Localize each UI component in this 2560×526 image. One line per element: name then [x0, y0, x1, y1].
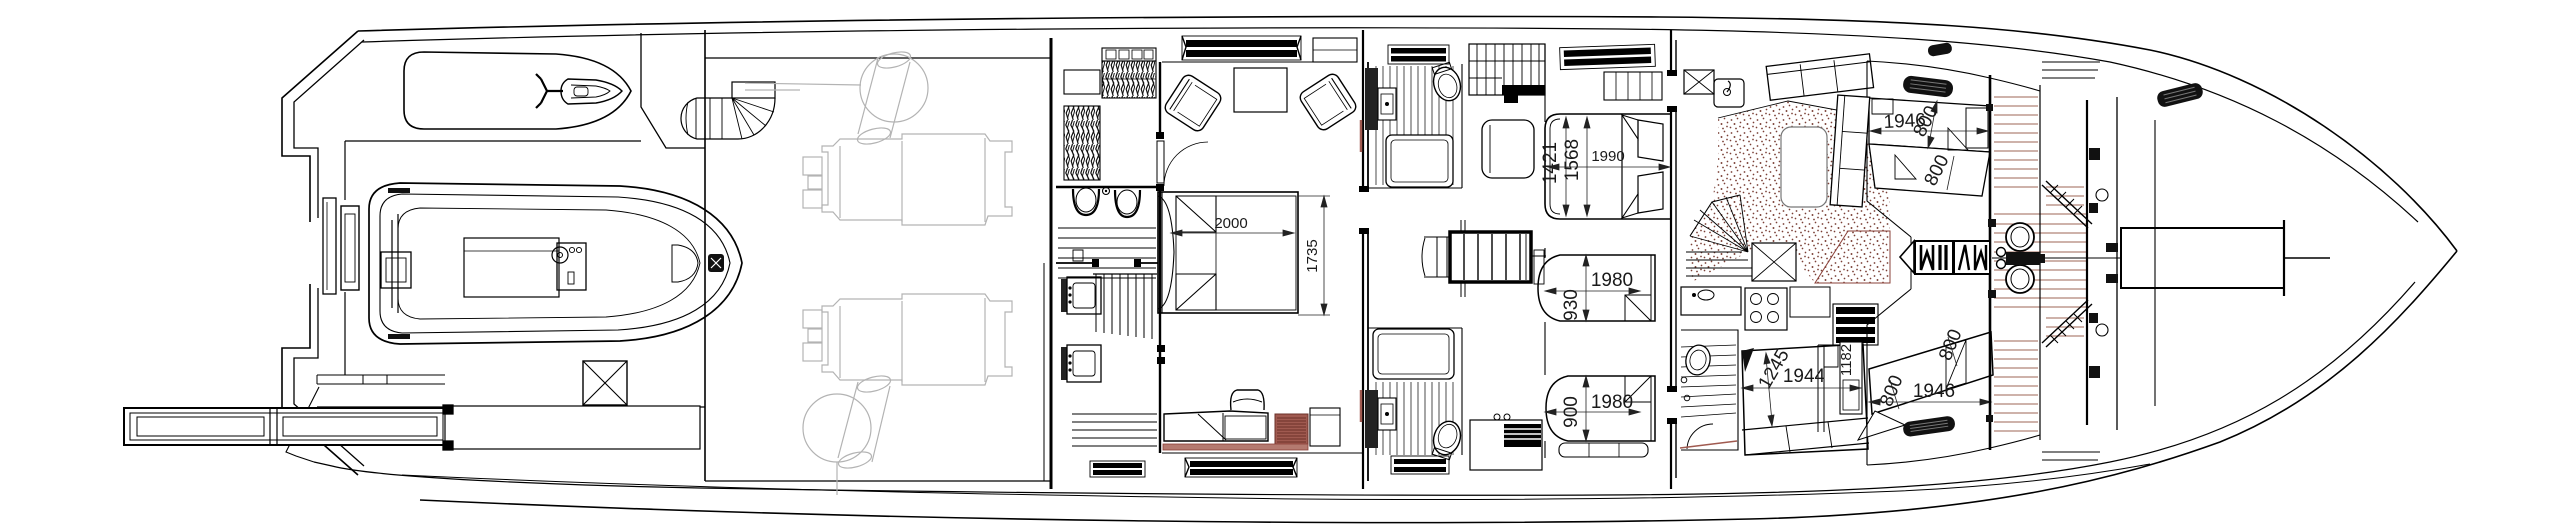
svg-text:1980: 1980 [1591, 270, 1633, 291]
svg-text:1980: 1980 [1591, 392, 1633, 413]
svg-text:930: 930 [1561, 289, 1582, 321]
svg-text:1944: 1944 [1783, 366, 1826, 387]
svg-text:2000: 2000 [1214, 215, 1247, 232]
svg-text:1568: 1568 [1562, 139, 1583, 181]
svg-text:1735: 1735 [1304, 239, 1321, 272]
svg-text:1421: 1421 [1540, 142, 1561, 184]
svg-text:1990: 1990 [1591, 148, 1624, 165]
svg-text:900: 900 [1561, 396, 1582, 428]
svg-text:1182: 1182 [1838, 344, 1855, 376]
svg-text:1946: 1946 [1913, 381, 1955, 402]
